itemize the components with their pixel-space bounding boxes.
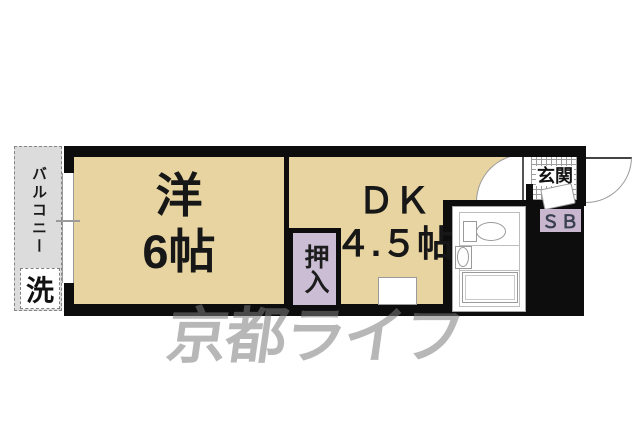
shoe-box: ＳＢ xyxy=(540,209,581,232)
watermark: 京都ライフ xyxy=(162,286,505,375)
wall-right-top xyxy=(577,146,586,206)
floor-plan: バルコニー 洗 押入 玄関 ＳＢ 洋 6帖 xyxy=(0,0,640,427)
western-room-label: 洋 6帖 xyxy=(74,168,284,280)
washer-label: 洗 xyxy=(26,269,54,309)
dk-label: ＤＫ ４.５帖 xyxy=(296,179,492,265)
wall-left-upper xyxy=(64,146,74,173)
western-room-name: 洋 xyxy=(74,168,284,224)
bathroom-divider-line-2 xyxy=(459,270,520,271)
balcony-window xyxy=(62,173,74,283)
western-room-size: 6帖 xyxy=(74,224,284,280)
balcony-label: バルコニー xyxy=(14,151,62,271)
shoe-box-label: ＳＢ xyxy=(542,208,580,234)
dk-name: ＤＫ xyxy=(296,179,492,222)
entrance-door-swing xyxy=(586,157,632,203)
wall-top xyxy=(64,146,586,157)
washing-machine-area: 洗 xyxy=(20,268,60,309)
dk-size: ４.５帖 xyxy=(296,222,492,265)
